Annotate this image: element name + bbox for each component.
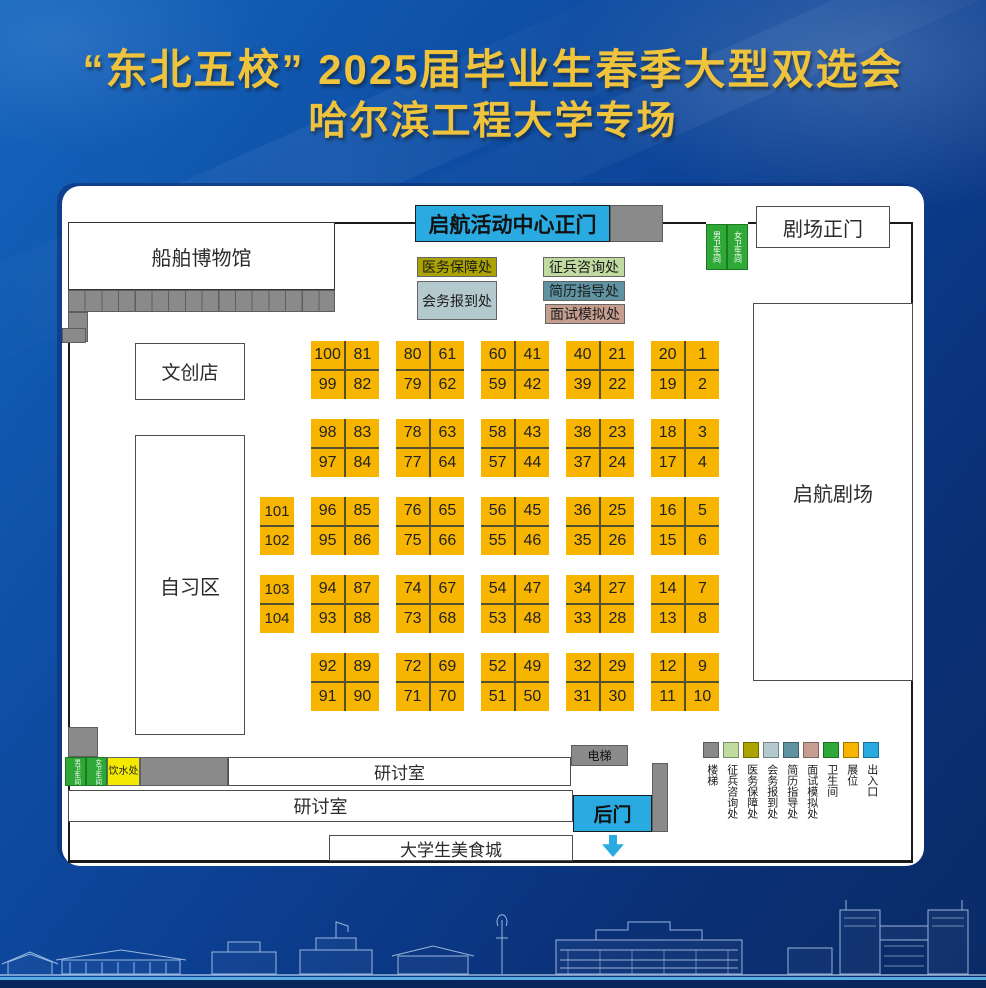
booth-29: 29 [601, 653, 634, 681]
exit-arrow-icon [602, 835, 624, 857]
booth-87: 87 [346, 575, 379, 603]
booth-4: 4 [686, 449, 719, 477]
booth-23: 23 [601, 419, 634, 447]
booth-98: 98 [311, 419, 344, 447]
stairs-block-west [62, 328, 86, 343]
booth-50: 50 [516, 683, 549, 711]
booth-15: 15 [651, 527, 684, 555]
booth-34: 34 [566, 575, 599, 603]
legend-item-6: 面试模拟处 [803, 742, 819, 819]
wall-top-2 [663, 222, 706, 224]
booth-59: 59 [481, 371, 514, 399]
booth-84: 84 [346, 449, 379, 477]
legend-item-8: 展位 [843, 742, 859, 819]
booth-block: 94879388 [311, 575, 379, 633]
room-seminar-lower: 研讨室 [68, 790, 573, 822]
booth-block: 103104 [260, 575, 294, 633]
booth-block: 201192 [651, 341, 719, 399]
legend-swatch [803, 742, 819, 758]
restroom-female-top: 女卫生间 [727, 224, 748, 270]
water-station: 饮水处 [107, 757, 140, 786]
booth-69: 69 [431, 653, 464, 681]
restroom-male-bottom: 男卫生间 [65, 757, 86, 786]
booth-block: 54475348 [481, 575, 549, 633]
booth-83: 83 [346, 419, 379, 447]
booth-88: 88 [346, 605, 379, 633]
booth-63: 63 [431, 419, 464, 447]
room-theater-entrance: 剧场正门 [756, 206, 890, 248]
legend-swatch [763, 742, 779, 758]
booth-block: 100819982 [311, 341, 379, 399]
booth-37: 37 [566, 449, 599, 477]
restroom-female-bottom: 女卫生间 [86, 757, 107, 786]
legend-swatch [863, 742, 879, 758]
booth-71: 71 [396, 683, 429, 711]
booth-block: 34273328 [566, 575, 634, 633]
booth-33: 33 [566, 605, 599, 633]
facility-checkin: 会务报到处 [417, 281, 497, 320]
booth-85: 85 [346, 497, 379, 525]
booth-76: 76 [396, 497, 429, 525]
booth-31: 31 [566, 683, 599, 711]
booth-61: 61 [431, 341, 464, 369]
booth-52: 52 [481, 653, 514, 681]
booth-8: 8 [686, 605, 719, 633]
booth-68: 68 [431, 605, 464, 633]
wall-top-4 [890, 222, 913, 224]
booth-block: 80617962 [396, 341, 464, 399]
booth-10: 10 [686, 683, 719, 711]
booth-45: 45 [516, 497, 549, 525]
legend-item-4: 会务报到处 [763, 742, 779, 819]
booth-80: 80 [396, 341, 429, 369]
booth-block: 98839784 [311, 419, 379, 477]
booth-86: 86 [346, 527, 379, 555]
stairs-strip [68, 290, 335, 312]
legend-label: 医务保障处 [745, 764, 757, 819]
booth-block: 56455546 [481, 497, 549, 555]
booth-65: 65 [431, 497, 464, 525]
booth-17: 17 [651, 449, 684, 477]
booth-91: 91 [311, 683, 344, 711]
booth-95: 95 [311, 527, 344, 555]
booth-81: 81 [346, 341, 379, 369]
booth-1: 1 [686, 341, 719, 369]
booth-block: 165156 [651, 497, 719, 555]
booth-block: 96859586 [311, 497, 379, 555]
booth-82: 82 [346, 371, 379, 399]
booth-96: 96 [311, 497, 344, 525]
restroom-label: 男卫生间 [72, 759, 79, 785]
booth-90: 90 [346, 683, 379, 711]
legend-label: 楼梯 [705, 764, 717, 786]
booth-75: 75 [396, 527, 429, 555]
booth-28: 28 [601, 605, 634, 633]
booth-77: 77 [396, 449, 429, 477]
booth-19: 19 [651, 371, 684, 399]
legend-swatch [843, 742, 859, 758]
booth-9: 9 [686, 653, 719, 681]
booth-7: 7 [686, 575, 719, 603]
skyline-illustration [0, 882, 986, 978]
booth-102: 102 [260, 527, 294, 555]
booth-block: 36253526 [566, 497, 634, 555]
legend-item-5: 简历指导处 [783, 742, 799, 819]
main-entrance: 启航活动中心正门 [415, 205, 610, 242]
booth-40: 40 [566, 341, 599, 369]
booth-58: 58 [481, 419, 514, 447]
wall-block-backdoor [652, 763, 668, 832]
booth-22: 22 [601, 371, 634, 399]
booth-block: 52495150 [481, 653, 549, 711]
legend-swatch [723, 742, 739, 758]
booth-39: 39 [566, 371, 599, 399]
booth-62: 62 [431, 371, 464, 399]
booth-block: 74677368 [396, 575, 464, 633]
booth-74: 74 [396, 575, 429, 603]
poster-page: “东北五校” 2025届毕业生春季大型双选会 哈尔滨工程大学专场 电梯 船舶博物… [0, 0, 986, 988]
booth-block: 92899190 [311, 653, 379, 711]
booth-24: 24 [601, 449, 634, 477]
room-seminar-upper: 研讨室 [228, 757, 571, 786]
legend-label: 展位 [845, 764, 857, 786]
booth-block: 147138 [651, 575, 719, 633]
booth-79: 79 [396, 371, 429, 399]
booth-99: 99 [311, 371, 344, 399]
elevator-label: 电梯 [587, 747, 611, 764]
legend: 楼梯征兵咨询处医务保障处会务报到处简历指导处面试模拟处卫生间展位出入口 [703, 742, 879, 819]
booth-20: 20 [651, 341, 684, 369]
room-study-area: 自习区 [135, 435, 245, 735]
booth-67: 67 [431, 575, 464, 603]
stairs-bar-bottom [140, 757, 228, 786]
booth-3: 3 [686, 419, 719, 447]
booth-25: 25 [601, 497, 634, 525]
floor-plan: 电梯 船舶博物馆 剧场正门 文创店 自习区 启航剧场 研讨室 研讨室 大学生美食… [62, 186, 924, 866]
legend-label: 简历指导处 [785, 764, 797, 819]
booth-block: 60415942 [481, 341, 549, 399]
booth-block: 58435744 [481, 419, 549, 477]
booth-49: 49 [516, 653, 549, 681]
legend-item-3: 医务保障处 [743, 742, 759, 819]
booth-44: 44 [516, 449, 549, 477]
legend-label: 出入口 [865, 764, 877, 797]
booth-60: 60 [481, 341, 514, 369]
booth-103: 103 [260, 575, 294, 603]
facility-conscription: 征兵咨询处 [543, 257, 625, 277]
booth-18: 18 [651, 419, 684, 447]
booth-70: 70 [431, 683, 464, 711]
legend-swatch [823, 742, 839, 758]
booth-73: 73 [396, 605, 429, 633]
booth-13: 13 [651, 605, 684, 633]
room-food-court: 大学生美食城 [329, 835, 573, 861]
booth-66: 66 [431, 527, 464, 555]
facility-resume: 简历指导处 [543, 281, 625, 301]
booth-block: 40213922 [566, 341, 634, 399]
booth-43: 43 [516, 419, 549, 447]
event-title: “东北五校” 2025届毕业生春季大型双选会 哈尔滨工程大学专场 [0, 44, 986, 147]
legend-swatch [743, 742, 759, 758]
booth-36: 36 [566, 497, 599, 525]
booth-21: 21 [601, 341, 634, 369]
booth-101: 101 [260, 497, 294, 525]
booth-56: 56 [481, 497, 514, 525]
booth-5: 5 [686, 497, 719, 525]
booth-35: 35 [566, 527, 599, 555]
legend-swatch [703, 742, 719, 758]
elevator: 电梯 [571, 745, 628, 766]
stairs-block-entrance [610, 205, 663, 242]
legend-label: 卫生间 [825, 764, 837, 797]
booth-64: 64 [431, 449, 464, 477]
stairs-block-southwest [68, 727, 98, 757]
booth-12: 12 [651, 653, 684, 681]
bottom-dark-strip [0, 980, 986, 988]
room-qihang-theater: 启航剧场 [753, 303, 913, 681]
booth-11: 11 [651, 683, 684, 711]
booth-block: 101102 [260, 497, 294, 555]
facility-medical: 医务保障处 [417, 257, 497, 277]
legend-item-2: 征兵咨询处 [723, 742, 739, 819]
booth-block: 183174 [651, 419, 719, 477]
booth-6: 6 [686, 527, 719, 555]
legend-item-1: 楼梯 [703, 742, 719, 819]
booth-block: 78637764 [396, 419, 464, 477]
booth-51: 51 [481, 683, 514, 711]
booth-54: 54 [481, 575, 514, 603]
booth-41: 41 [516, 341, 549, 369]
booth-94: 94 [311, 575, 344, 603]
booth-89: 89 [346, 653, 379, 681]
restroom-label: 男卫生间 [713, 231, 721, 263]
booth-30: 30 [601, 683, 634, 711]
room-ship-museum: 船舶博物馆 [68, 222, 335, 290]
booth-38: 38 [566, 419, 599, 447]
booth-32: 32 [566, 653, 599, 681]
facility-interview: 面试模拟处 [545, 304, 625, 324]
event-title-line2: 哈尔滨工程大学专场 [0, 97, 986, 148]
event-title-line1: “东北五校” 2025届毕业生春季大型双选会 [0, 44, 986, 97]
legend-item-9: 出入口 [863, 742, 879, 819]
restroom-label: 女卫生间 [93, 759, 100, 785]
booth-block: 1291110 [651, 653, 719, 711]
booth-78: 78 [396, 419, 429, 447]
booth-42: 42 [516, 371, 549, 399]
booth-block: 32293130 [566, 653, 634, 711]
booth-104: 104 [260, 605, 294, 633]
booth-27: 27 [601, 575, 634, 603]
booth-55: 55 [481, 527, 514, 555]
room-culture-store: 文创店 [135, 343, 245, 400]
booth-47: 47 [516, 575, 549, 603]
booth-block: 76657566 [396, 497, 464, 555]
booth-block: 38233724 [566, 419, 634, 477]
booth-block: 72697170 [396, 653, 464, 711]
booth-14: 14 [651, 575, 684, 603]
booth-26: 26 [601, 527, 634, 555]
booth-93: 93 [311, 605, 344, 633]
legend-label: 征兵咨询处 [725, 764, 737, 819]
booth-16: 16 [651, 497, 684, 525]
booth-48: 48 [516, 605, 549, 633]
booth-92: 92 [311, 653, 344, 681]
booth-97: 97 [311, 449, 344, 477]
legend-item-7: 卫生间 [823, 742, 839, 819]
back-door: 后门 [573, 795, 652, 832]
booth-2: 2 [686, 371, 719, 399]
legend-label: 会务报到处 [765, 764, 777, 819]
booth-46: 46 [516, 527, 549, 555]
booth-53: 53 [481, 605, 514, 633]
restroom-label: 女卫生间 [734, 231, 742, 263]
legend-swatch [783, 742, 799, 758]
booth-72: 72 [396, 653, 429, 681]
legend-label: 面试模拟处 [805, 764, 817, 819]
booth-100: 100 [311, 341, 344, 369]
restroom-male-top: 男卫生间 [706, 224, 727, 270]
booth-57: 57 [481, 449, 514, 477]
